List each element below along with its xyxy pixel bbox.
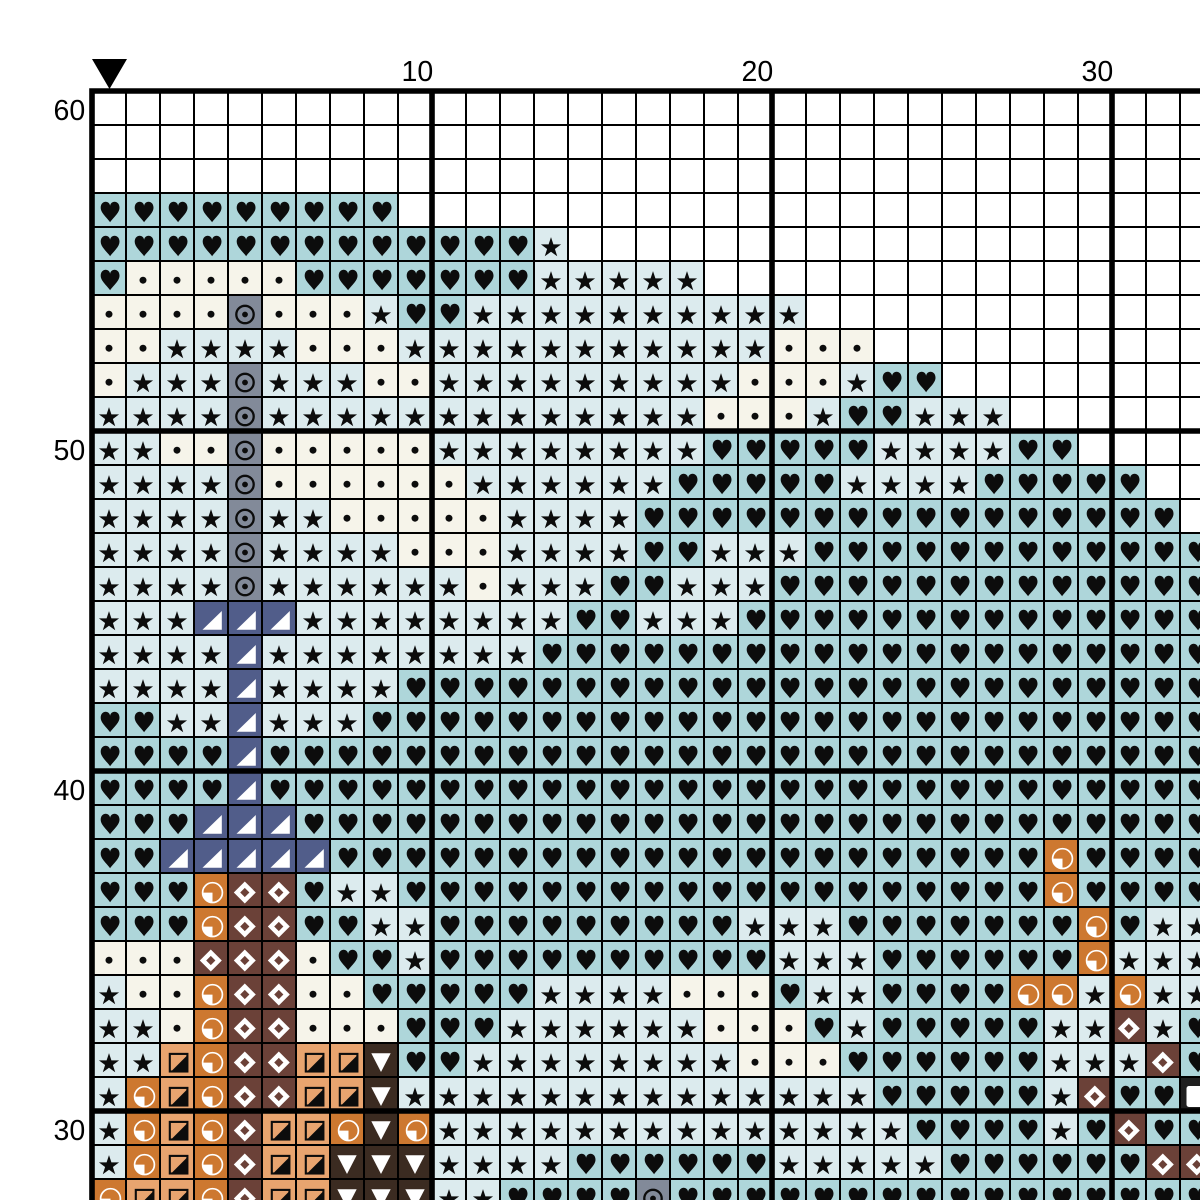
svg-text:30: 30 [53, 1115, 85, 1147]
svg-text:10: 10 [401, 56, 433, 88]
svg-text:20: 20 [741, 56, 773, 88]
svg-text:60: 60 [53, 95, 85, 127]
svg-text:40: 40 [53, 775, 85, 807]
svg-text:50: 50 [53, 435, 85, 467]
svg-text:30: 30 [1081, 56, 1113, 88]
